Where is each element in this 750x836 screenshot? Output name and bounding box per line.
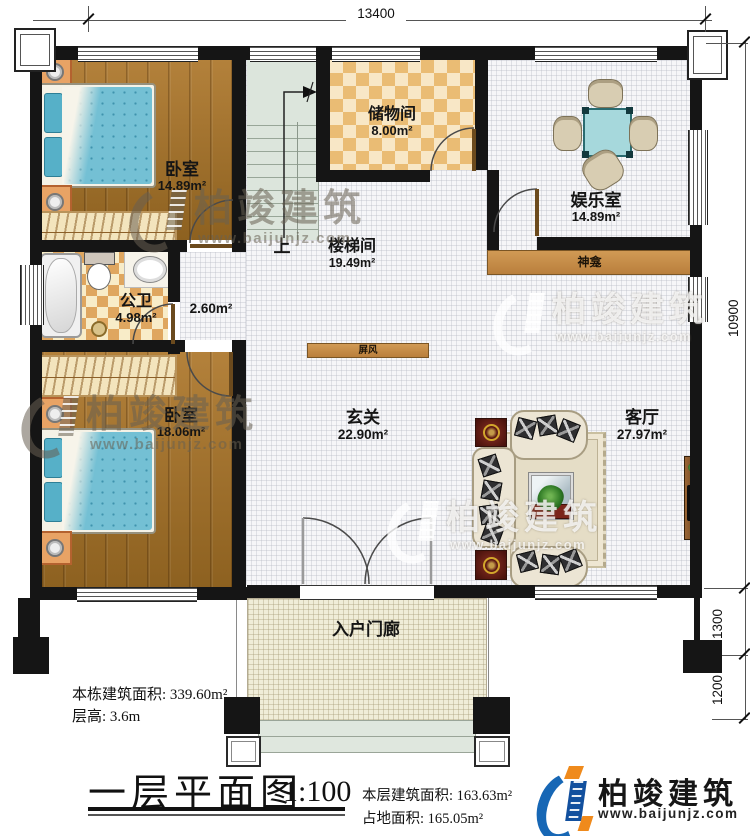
wall — [657, 585, 702, 598]
up-text: 上 — [274, 237, 291, 256]
staircase — [247, 60, 319, 240]
sink-basin — [133, 256, 167, 283]
porch-column — [224, 697, 260, 734]
wall — [537, 237, 702, 250]
lamp-icon — [46, 193, 64, 211]
stair-rail — [297, 122, 298, 240]
porch-step — [251, 736, 483, 753]
bed-sheet — [62, 87, 100, 184]
screen-partition: 屏风 — [307, 343, 429, 358]
bed-sheet — [62, 432, 100, 530]
cushion — [480, 479, 502, 501]
note-text: 本栋建筑面积: 339.60m² — [72, 687, 227, 703]
note-text: 本层建筑面积: 163.63m² — [362, 788, 512, 804]
wall — [316, 46, 332, 60]
wall — [487, 237, 495, 250]
floor-height-note: 层高: 3.6m — [72, 705, 140, 726]
room-area: 22.90m² — [303, 427, 423, 442]
toilet-bowl — [87, 263, 111, 290]
porch-step — [258, 720, 476, 737]
room-label-bedroom1: 卧室 14.89m² — [122, 160, 242, 194]
window — [688, 130, 708, 225]
room-label-foyer: 玄关 22.90m² — [303, 408, 423, 442]
table-corner — [582, 107, 589, 114]
corridor-area-label: 2.60m² — [151, 301, 271, 316]
dim-text: 1300 — [710, 609, 725, 639]
lamp-icon — [46, 539, 64, 557]
room-area: 14.89m² — [536, 210, 656, 225]
wall — [198, 46, 250, 60]
room-name: 玄关 — [303, 408, 423, 427]
floor-plan-canvas: 神龛 屏风 — [0, 0, 750, 836]
dim-text: 13400 — [357, 6, 395, 21]
sink — [124, 251, 174, 288]
entry-porch — [247, 598, 487, 722]
table-corner — [626, 107, 633, 114]
chair — [588, 79, 623, 108]
room-area: 19.49m² — [292, 256, 412, 270]
bed-bedroom2 — [38, 428, 156, 534]
room-area: 27.97m² — [582, 427, 702, 442]
room-label-bedroom2: 卧室 18.06m² — [121, 406, 241, 440]
dim-right-mid: 1300 — [711, 602, 725, 646]
dim-text: 1200 — [710, 675, 725, 705]
room-name: 卧室 — [122, 160, 242, 179]
room-name: 楼梯间 — [292, 238, 412, 256]
stairs-up-label: 上 — [262, 237, 302, 256]
room-label-stairwell: 楼梯间 19.49m² — [292, 238, 412, 270]
footprint-area-note: 占地面积: 165.05m² — [362, 807, 483, 828]
pillow — [44, 93, 63, 133]
room-label-living: 客厅 27.97m² — [582, 408, 702, 442]
room-area: 18.06m² — [121, 425, 241, 440]
title-underline-thin — [88, 814, 345, 816]
porch-edge-line — [488, 598, 489, 698]
pillow — [44, 438, 63, 478]
window — [535, 585, 657, 600]
emblem-icon — [483, 424, 500, 441]
screen-label: 屏风 — [358, 345, 377, 356]
wall — [420, 46, 535, 60]
dim-text: 10900 — [726, 299, 741, 337]
room-label-porch: 入户门廊 — [306, 620, 426, 639]
wall — [247, 585, 300, 598]
wall — [233, 240, 246, 252]
dimension-line-right — [745, 42, 746, 720]
brand-logo — [538, 764, 592, 834]
dim-top-value: 13400 — [346, 7, 406, 22]
wall — [30, 46, 42, 265]
nightstand — [38, 397, 72, 431]
toilet — [84, 252, 113, 289]
window — [78, 46, 198, 62]
window — [20, 265, 44, 325]
side-table — [475, 550, 507, 580]
wall — [42, 340, 185, 352]
room-area: 8.00m² — [332, 124, 452, 139]
wall — [316, 170, 430, 182]
room-area: 14.89m² — [122, 179, 242, 194]
plan-scale: 1:100 — [283, 775, 351, 809]
wall-stub — [18, 598, 40, 639]
window — [535, 46, 657, 62]
wall — [434, 585, 535, 598]
window — [688, 277, 708, 322]
dim-right-low: 1200 — [711, 668, 725, 712]
wall — [197, 587, 247, 600]
entry-threshold — [300, 585, 434, 600]
column — [13, 637, 49, 674]
wall-stub — [694, 598, 700, 640]
room-label-storage: 储物间 8.00m² — [332, 106, 452, 138]
note-text: 占地面积: 165.05m² — [362, 811, 483, 827]
pillow — [44, 482, 63, 522]
wall — [316, 60, 330, 170]
dim-right-main: 10900 — [727, 278, 741, 358]
wardrobe-bedroom2 — [40, 355, 177, 397]
bathtub-basin — [45, 258, 77, 333]
window — [250, 46, 316, 62]
floor-area-note: 本层建筑面积: 163.63m² — [362, 784, 512, 805]
plan-scale-text: 1:100 — [283, 775, 351, 808]
window — [77, 587, 197, 602]
wall — [42, 240, 187, 252]
brand-site: www.baijunjz.com — [598, 806, 739, 821]
wall — [30, 325, 42, 600]
note-text: 层高: 3.6m — [72, 709, 140, 725]
room-name: 卧室 — [121, 406, 241, 425]
porch-column — [473, 697, 510, 734]
wall — [690, 322, 702, 598]
wall — [232, 60, 246, 252]
stair-treads — [247, 125, 318, 240]
room-label-entertainment: 娱乐室 14.89m² — [536, 191, 656, 225]
table-corner — [626, 151, 633, 158]
wall — [232, 340, 246, 587]
room-name: 储物间 — [332, 106, 452, 124]
ornament-inner — [20, 34, 50, 66]
column-cap-ornament — [687, 30, 728, 80]
side-table — [475, 418, 507, 447]
ornament-inner — [693, 36, 722, 74]
porch-edge-line — [236, 600, 237, 698]
room-name: 娱乐室 — [536, 191, 656, 210]
column-cap-ornament — [14, 28, 56, 72]
wall — [690, 225, 702, 277]
room-name: 客厅 — [582, 408, 702, 427]
chair — [629, 116, 658, 151]
shrine-label: 神龛 — [577, 255, 601, 269]
shrine-cabinet: 神龛 — [487, 250, 692, 275]
cushion — [536, 414, 558, 436]
nightstand — [38, 531, 72, 565]
brand-site-text: www.baijunjz.com — [598, 806, 739, 821]
lamp-icon — [46, 405, 64, 423]
column-base — [474, 736, 510, 767]
window — [332, 46, 420, 62]
building-area-note: 本栋建筑面积: 339.60m² — [72, 683, 227, 704]
pillow — [44, 137, 63, 177]
wall — [475, 60, 488, 170]
emblem-icon — [483, 557, 500, 574]
chair — [553, 116, 582, 151]
room-area: 2.60m² — [151, 301, 271, 316]
room-name: 入户门廊 — [306, 620, 426, 639]
wall — [30, 587, 77, 600]
title-underline-thick — [88, 807, 345, 811]
